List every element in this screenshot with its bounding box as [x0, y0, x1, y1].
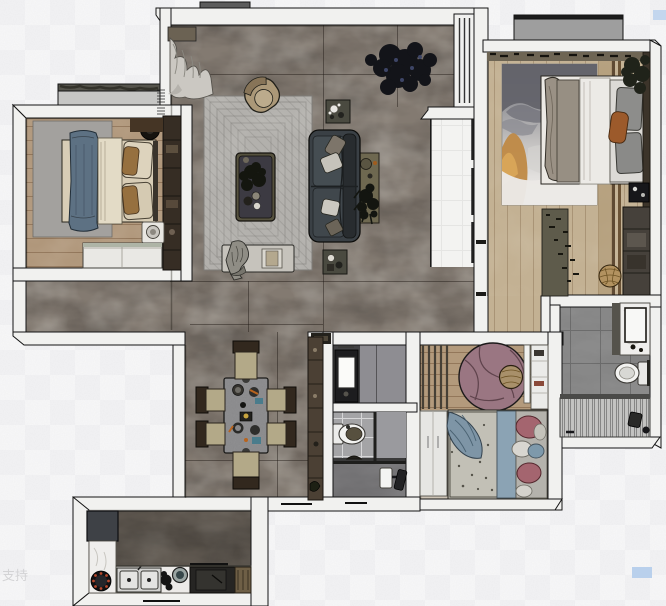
svg-text:支持: 支持 [2, 568, 28, 583]
